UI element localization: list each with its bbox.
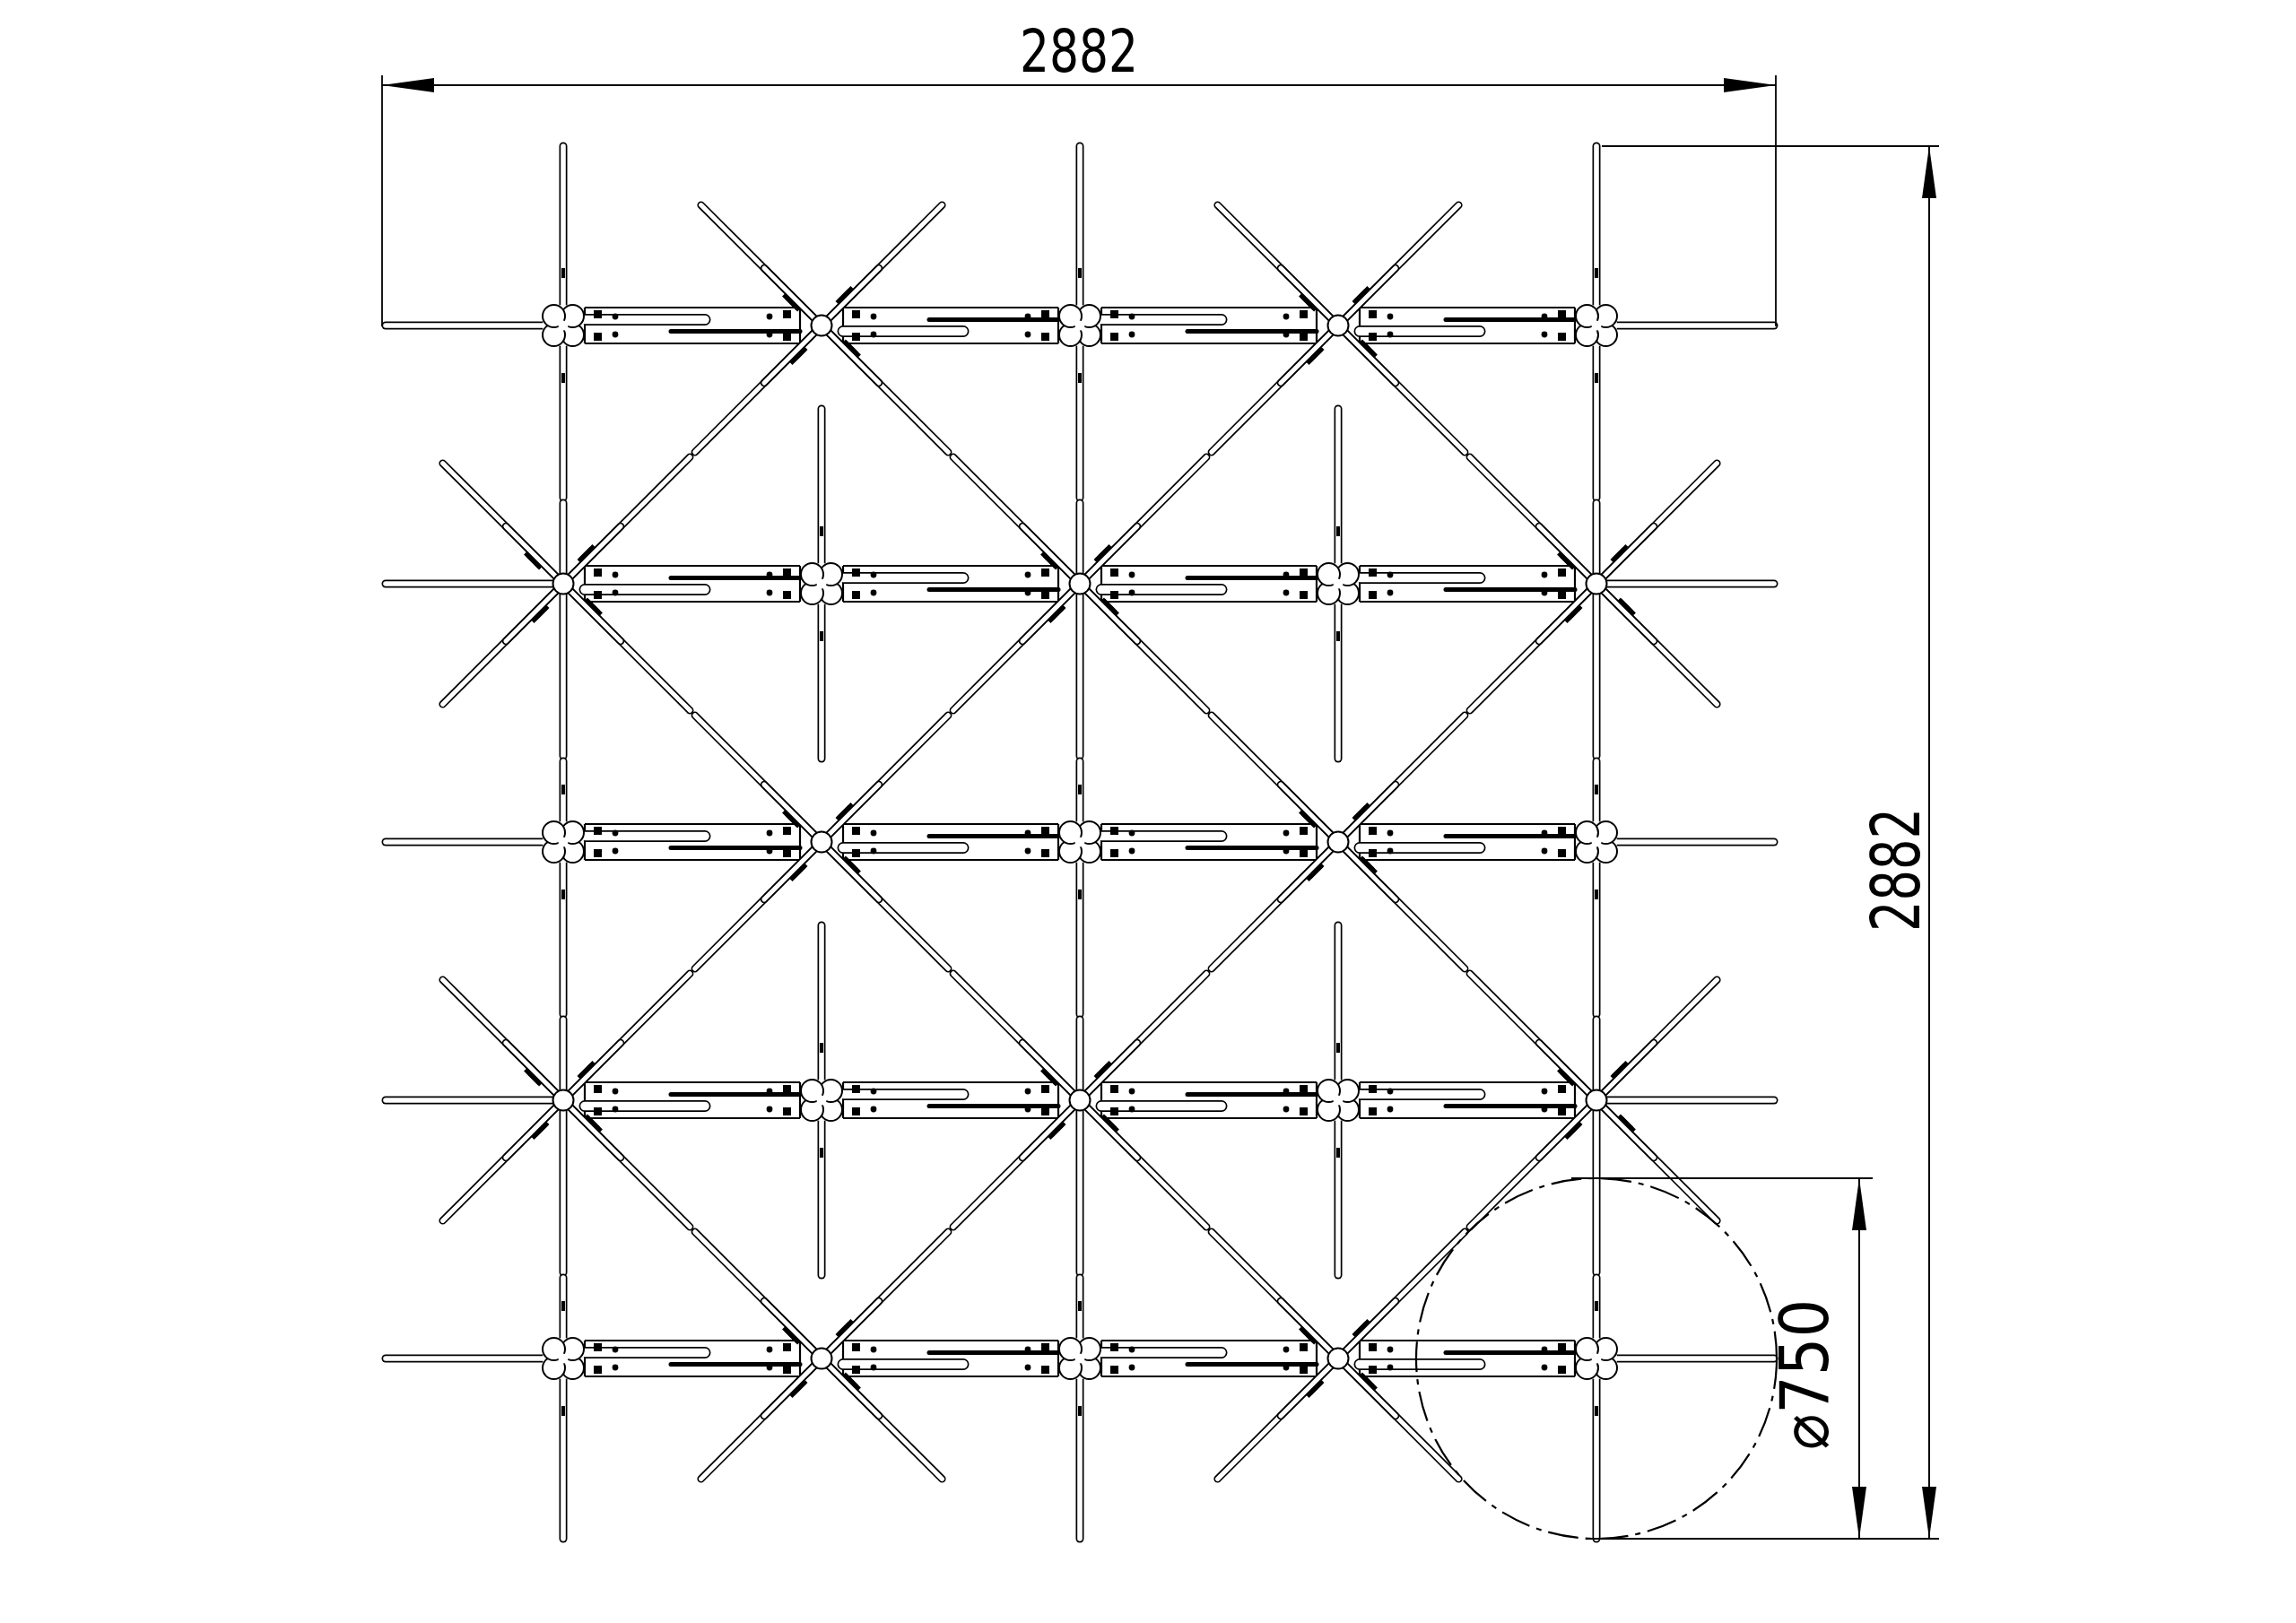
dimension-width-label: 2882	[1020, 17, 1138, 86]
dimension-arrow-up-icon	[1922, 146, 1936, 198]
dimension-arrow-down-icon	[1922, 1487, 1936, 1539]
truss-structure	[386, 146, 1774, 1539]
dimension-diameter-label: ⌀750	[1766, 1299, 1843, 1450]
dimension-height-label: 2882	[1857, 808, 1935, 932]
dimension-arrow-right-icon	[1724, 78, 1776, 92]
dimension-arrow-left-icon	[382, 78, 434, 92]
technical-drawing-canvas: 2882 2882 ⌀750	[0, 0, 2296, 1623]
dimension-arrow-down-icon	[1852, 1487, 1866, 1539]
dimension-arrow-up-icon	[1852, 1178, 1866, 1230]
drawing-sheet: 2882 2882 ⌀750	[0, 0, 2296, 1623]
